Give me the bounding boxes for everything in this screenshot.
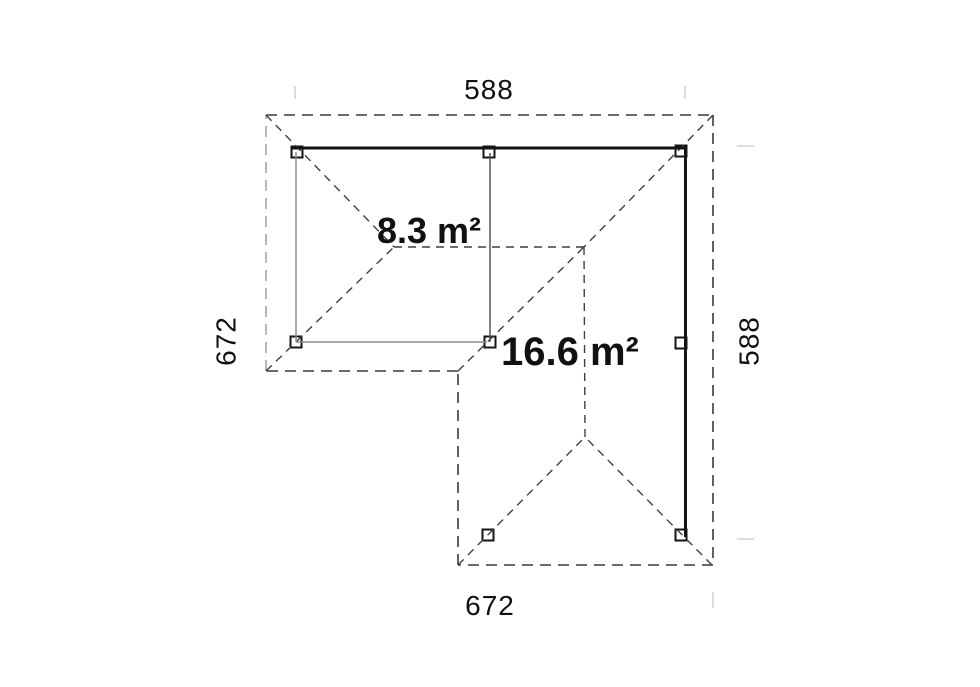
floor-plan-svg: 588 672 672 588 8.3 m² 16.6 m² bbox=[0, 0, 980, 687]
hip-bottom-left bbox=[266, 247, 394, 371]
dimension-label-top: 588 bbox=[464, 74, 514, 105]
dimension-label-bottom: 672 bbox=[465, 590, 515, 621]
hip-top-left bbox=[266, 115, 394, 247]
dimension-label-left: 672 bbox=[211, 316, 242, 366]
hip-bottom-wing-right bbox=[585, 437, 712, 565]
dimension-label-right: 588 bbox=[734, 316, 765, 366]
area-label-small-room: 8.3 m² bbox=[377, 210, 481, 251]
hip-top-right bbox=[584, 115, 713, 247]
hip-bottom-wing-left bbox=[458, 437, 585, 565]
area-label-large-room: 16.6 m² bbox=[501, 330, 639, 374]
floor-plan-canvas: 588 672 672 588 8.3 m² 16.6 m² bbox=[0, 0, 980, 687]
